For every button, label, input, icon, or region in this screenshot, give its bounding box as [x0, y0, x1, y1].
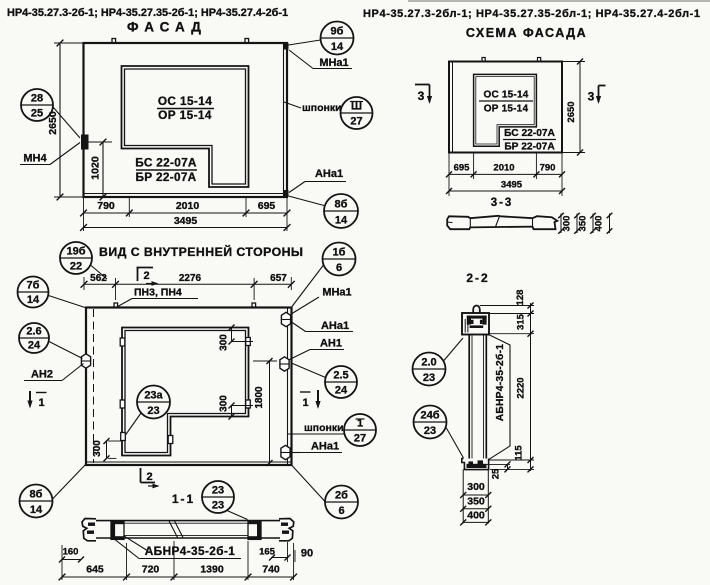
svg-text:24б: 24б: [420, 410, 439, 422]
svg-text:720: 720: [142, 564, 160, 576]
svg-text:23: 23: [147, 405, 159, 417]
svg-text:2650: 2650: [566, 101, 577, 122]
svg-text:695: 695: [258, 200, 276, 212]
svg-text:7б: 7б: [27, 280, 40, 292]
svg-text:695: 695: [454, 163, 471, 174]
svg-text:790: 790: [97, 200, 115, 212]
svg-text:14: 14: [27, 294, 40, 306]
svg-text:27: 27: [354, 433, 366, 445]
svg-text:АНа1: АНа1: [321, 320, 349, 332]
svg-text:23: 23: [424, 425, 436, 437]
svg-text:1020: 1020: [90, 156, 102, 180]
svg-text:300: 300: [562, 216, 573, 232]
svg-text:АНа1: АНа1: [315, 168, 343, 180]
svg-text:БС 22-07А: БС 22-07А: [135, 156, 197, 170]
svg-text:6: 6: [336, 262, 342, 274]
svg-text:3495: 3495: [501, 180, 523, 191]
svg-text:1: 1: [302, 397, 308, 409]
svg-text:АБНР4-35-2б-1: АБНР4-35-2б-1: [145, 544, 236, 558]
svg-text:6: 6: [338, 505, 344, 517]
svg-text:НР4-35.27.3-2бл-1; НР4-35.27.3: НР4-35.27.3-2бл-1; НР4-35.27.35-2бл-1; Н…: [363, 8, 701, 20]
svg-text:3495: 3495: [174, 215, 198, 227]
svg-text:300: 300: [467, 481, 485, 493]
svg-text:315: 315: [516, 313, 527, 330]
svg-text:2.0: 2.0: [421, 357, 436, 369]
svg-text:2-2: 2-2: [466, 271, 489, 285]
svg-text:350: 350: [467, 496, 485, 508]
svg-text:14: 14: [331, 41, 344, 53]
svg-text:шпонки: шпонки: [304, 422, 344, 434]
svg-text:БР 22-07А: БР 22-07А: [504, 142, 555, 153]
svg-text:2: 2: [143, 270, 149, 282]
svg-text:АБНР4-35-2б-1: АБНР4-35-2б-1: [494, 344, 506, 422]
svg-text:24: 24: [28, 340, 41, 352]
svg-text:14: 14: [335, 215, 348, 227]
svg-text:АН1: АН1: [320, 338, 342, 350]
svg-text:2010: 2010: [176, 200, 200, 212]
svg-text:562: 562: [90, 273, 107, 284]
svg-text:90: 90: [301, 548, 313, 560]
svg-text:9б: 9б: [331, 26, 344, 38]
svg-text:1800: 1800: [254, 386, 265, 409]
svg-text:350: 350: [578, 216, 589, 232]
svg-text:НР4-35.27.3-2б-1; НР4-35.27.35: НР4-35.27.3-2б-1; НР4-35.27.35-2б-1; НР4…: [7, 7, 288, 19]
svg-text:115: 115: [514, 445, 525, 461]
svg-text:23: 23: [212, 500, 224, 512]
svg-text:МНа1: МНа1: [319, 57, 348, 69]
svg-text:645: 645: [86, 564, 104, 576]
svg-text:ОС 15-14: ОС 15-14: [158, 94, 212, 108]
svg-text:МНа1: МНа1: [322, 287, 351, 299]
svg-text:2б: 2б: [335, 490, 348, 502]
svg-text:8б: 8б: [335, 199, 348, 211]
svg-text:ПН3, ПН4: ПН3, ПН4: [134, 287, 182, 299]
svg-text:АНа1: АНа1: [311, 441, 339, 453]
svg-text:19б: 19б: [66, 246, 85, 258]
svg-text:25: 25: [31, 108, 43, 120]
svg-text:128: 128: [515, 290, 526, 306]
svg-text:3: 3: [418, 89, 425, 103]
svg-text:300: 300: [219, 334, 230, 351]
svg-text:400: 400: [467, 510, 485, 522]
svg-text:23а: 23а: [144, 390, 163, 402]
svg-text:шпонки: шпонки: [302, 102, 342, 114]
svg-text:3-3: 3-3: [491, 197, 514, 209]
svg-text:1б: 1б: [333, 247, 346, 259]
svg-text:ФАСАД: ФАСАД: [127, 20, 207, 35]
svg-text:2.6: 2.6: [26, 326, 41, 338]
svg-text:АН2: АН2: [31, 369, 53, 381]
svg-text:ВИД С ВНУТРЕННЕЙ СТОРОНЫ: ВИД С ВНУТРЕННЕЙ СТОРОНЫ: [99, 244, 303, 259]
svg-text:1390: 1390: [200, 564, 224, 576]
svg-text:3: 3: [588, 90, 595, 104]
svg-text:27: 27: [350, 116, 362, 128]
svg-text:300: 300: [219, 395, 230, 412]
svg-text:ОР 15-14: ОР 15-14: [484, 104, 529, 115]
svg-text:400: 400: [594, 216, 605, 232]
svg-text:23: 23: [423, 372, 435, 384]
svg-text:Ш: Ш: [351, 101, 362, 113]
svg-text:ОР 15-14: ОР 15-14: [158, 108, 212, 122]
svg-text:160: 160: [63, 547, 79, 558]
svg-text:657: 657: [270, 273, 287, 284]
svg-text:2220: 2220: [516, 377, 527, 398]
svg-text:СХЕМА ФАСАДА: СХЕМА ФАСАДА: [466, 26, 587, 40]
svg-text:2.5: 2.5: [333, 370, 348, 382]
svg-text:24: 24: [335, 385, 348, 397]
svg-text:22: 22: [70, 261, 82, 273]
svg-text:25: 25: [491, 468, 502, 479]
svg-text:2276: 2276: [179, 273, 202, 284]
svg-text:БС 22-07А: БС 22-07А: [504, 128, 555, 139]
svg-text:1: 1: [38, 397, 44, 409]
svg-text:28: 28: [31, 93, 43, 105]
svg-text:ОС 15-14: ОС 15-14: [484, 90, 529, 101]
svg-text:1-1: 1-1: [172, 492, 195, 506]
svg-text:300: 300: [92, 440, 103, 457]
svg-text:БР 22-07А: БР 22-07А: [135, 170, 196, 184]
svg-text:23: 23: [212, 485, 224, 497]
svg-text:2010: 2010: [493, 163, 514, 174]
svg-text:2: 2: [146, 471, 152, 483]
svg-text:МН4: МН4: [23, 153, 47, 165]
svg-text:740: 740: [262, 564, 280, 576]
svg-text:790: 790: [540, 163, 556, 174]
svg-text:8б: 8б: [30, 489, 43, 501]
svg-text:14: 14: [30, 504, 43, 516]
